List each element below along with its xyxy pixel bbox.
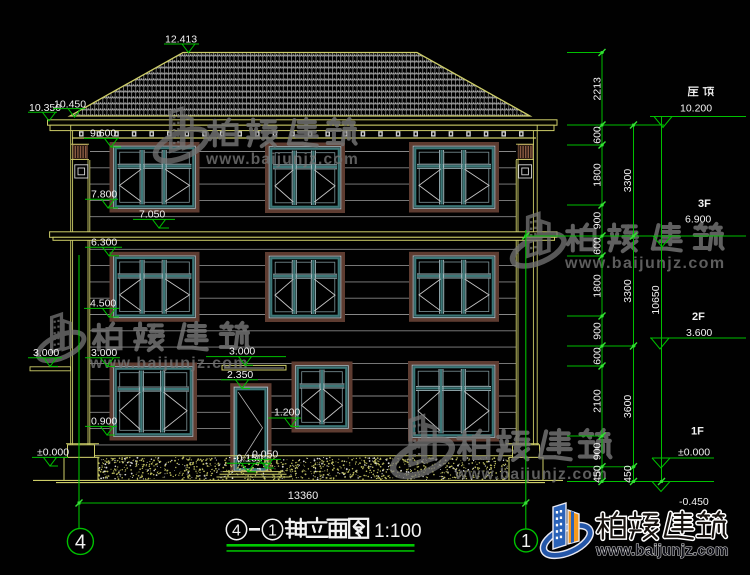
svg-text:1: 1 [268, 523, 277, 540]
svg-text:600: 600 [592, 347, 604, 365]
svg-text:900: 900 [592, 442, 604, 460]
svg-text:www.baijunjz.com: www.baijunjz.com [564, 255, 726, 272]
svg-text:600: 600 [592, 126, 604, 144]
svg-text:2213: 2213 [592, 77, 604, 101]
svg-text:±0.000: ±0.000 [37, 447, 69, 459]
svg-text:900: 900 [592, 212, 604, 230]
svg-text:1: 1 [521, 531, 531, 551]
svg-text:3300: 3300 [622, 169, 634, 193]
svg-text:600: 600 [592, 237, 604, 255]
svg-text:1F: 1F [691, 426, 704, 438]
svg-text:900: 900 [592, 322, 604, 340]
svg-text:www.baijunjz.com: www.baijunjz.com [454, 466, 608, 483]
svg-text:3F: 3F [698, 198, 711, 210]
svg-text:4: 4 [232, 523, 241, 540]
svg-text:3.600: 3.600 [686, 327, 712, 339]
svg-text:4.500: 4.500 [90, 298, 116, 310]
svg-text:450: 450 [622, 465, 634, 483]
svg-text:13360: 13360 [288, 490, 319, 502]
svg-text:3.000: 3.000 [229, 346, 255, 358]
svg-text:www.baijunjz.com: www.baijunjz.com [205, 151, 359, 168]
svg-text:7.050: 7.050 [139, 209, 165, 221]
svg-text:3600: 3600 [622, 395, 634, 419]
svg-text:1800: 1800 [592, 163, 604, 187]
svg-text:www.baijunjz.com: www.baijunjz.com [595, 542, 729, 559]
svg-text:1.200: 1.200 [274, 407, 300, 419]
svg-text:0.900: 0.900 [91, 416, 117, 428]
svg-text:6.900: 6.900 [685, 214, 711, 226]
svg-text:±0.000: ±0.000 [678, 447, 710, 459]
svg-text:3.000: 3.000 [33, 347, 59, 359]
svg-text:-0.450: -0.450 [679, 496, 709, 508]
svg-text:2100: 2100 [592, 389, 604, 413]
svg-text:2.350: 2.350 [227, 369, 253, 381]
svg-text:10650: 10650 [650, 285, 662, 314]
svg-text:0.050: 0.050 [252, 449, 278, 461]
svg-text:7.800: 7.800 [91, 189, 117, 201]
svg-text:3.000: 3.000 [91, 347, 117, 359]
svg-text:2F: 2F [692, 311, 705, 323]
svg-text:4: 4 [75, 532, 86, 554]
svg-text:1800: 1800 [592, 274, 604, 298]
svg-text:3300: 3300 [622, 279, 634, 303]
svg-text:1:100: 1:100 [374, 521, 422, 542]
svg-text:10.200: 10.200 [680, 103, 712, 115]
svg-text:450: 450 [592, 465, 604, 483]
svg-text:9.600: 9.600 [90, 128, 116, 140]
